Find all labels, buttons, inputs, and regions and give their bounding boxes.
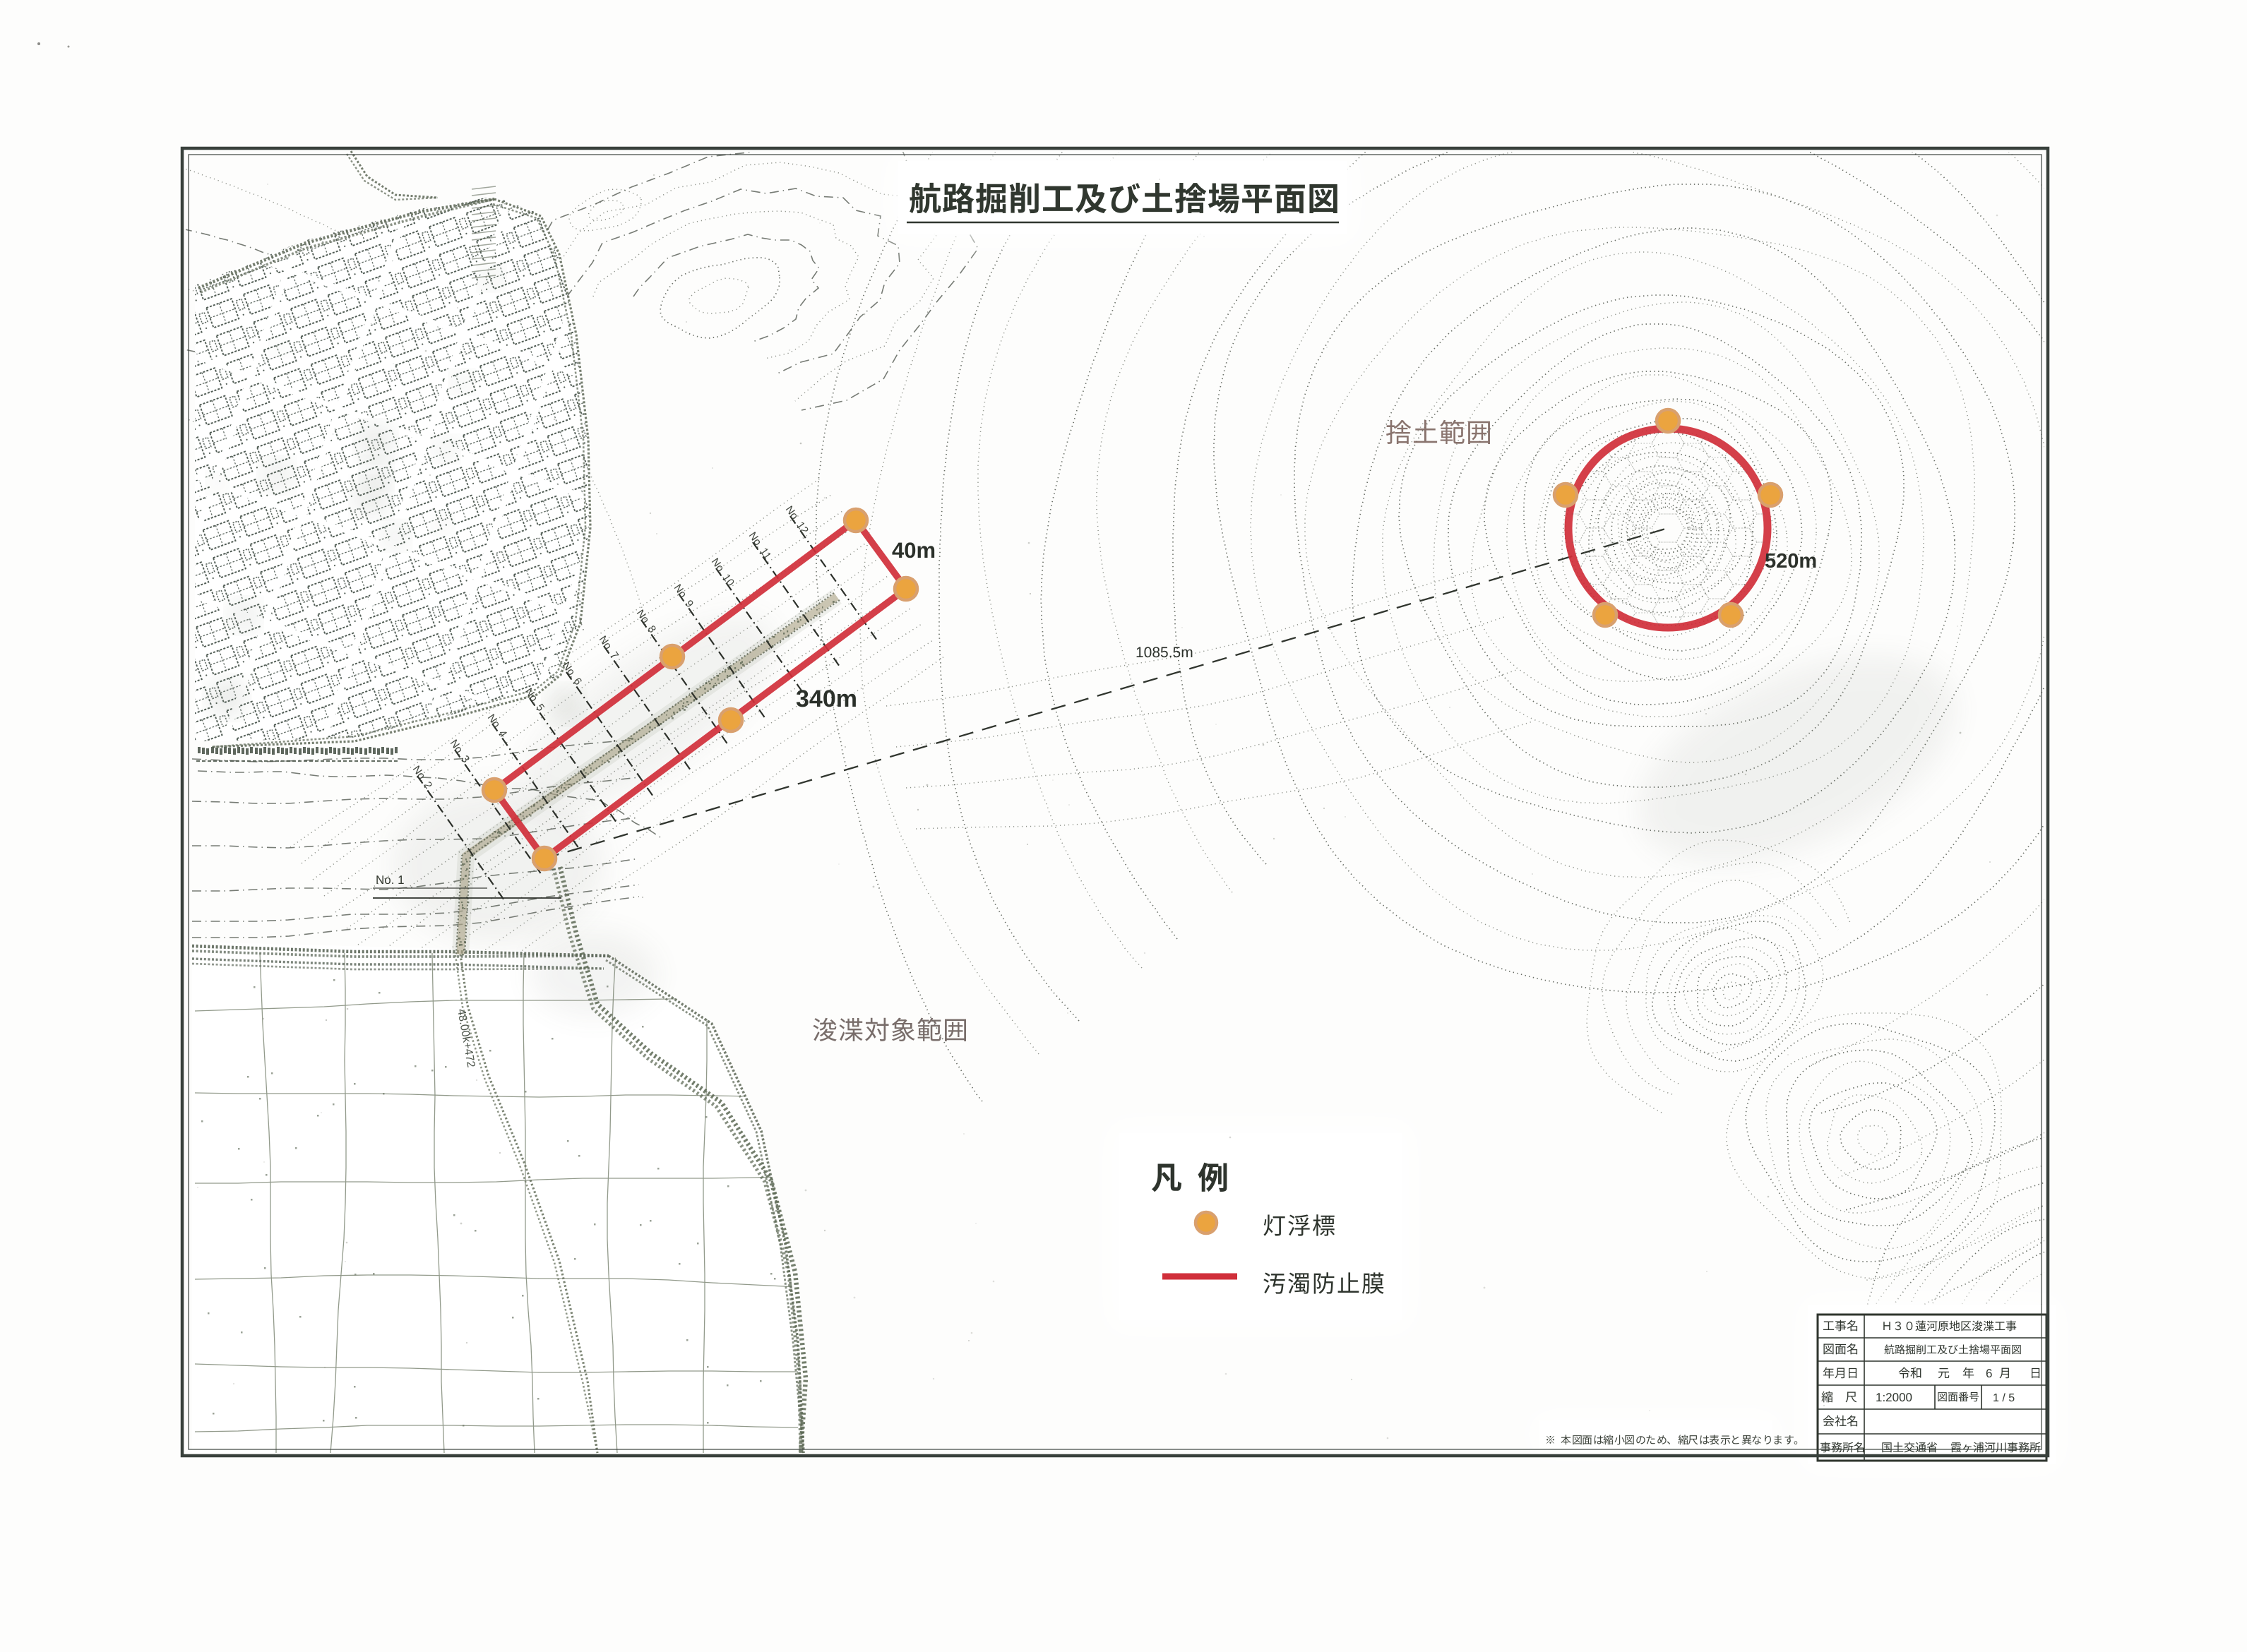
svg-text:1:2000: 1:2000 [1876,1391,1912,1404]
svg-text:6: 6 [1986,1367,1992,1380]
svg-text:40m: 40m [892,538,936,563]
svg-text:520m: 520m [1765,550,1817,573]
svg-text:No. 1: No. 1 [376,873,405,887]
svg-text:340m: 340m [796,686,857,712]
svg-text:1 / 5: 1 / 5 [1993,1392,2015,1404]
svg-text:1085.5m: 1085.5m [1136,645,1193,661]
